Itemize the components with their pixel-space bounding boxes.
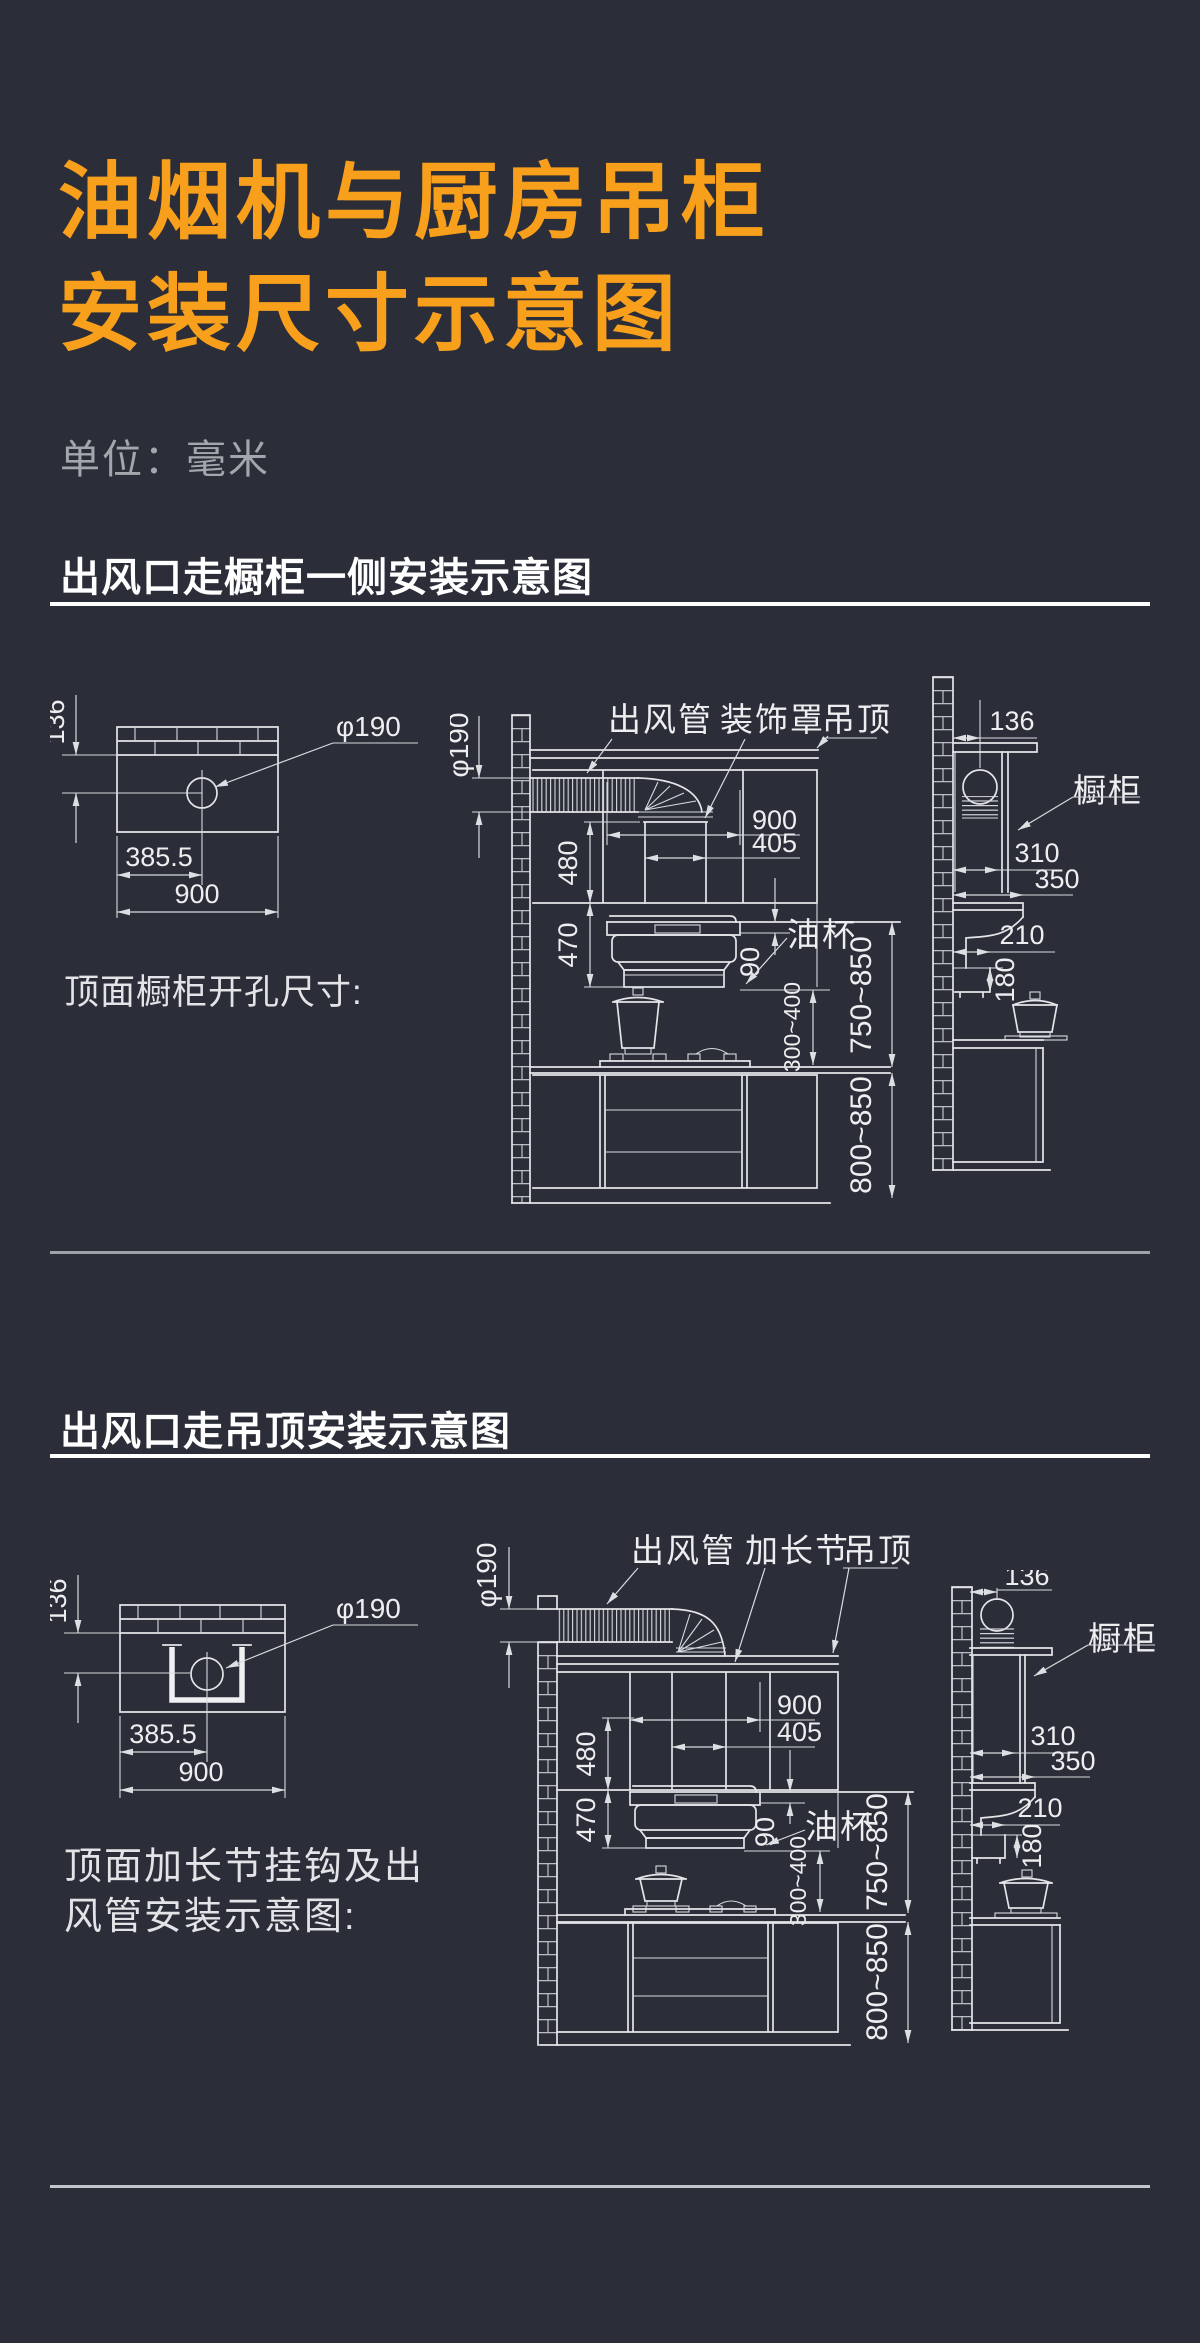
dim-136: 136 <box>953 700 1037 768</box>
dim-405-label: 405 <box>777 1717 822 1747</box>
extension-label: 加长节 <box>745 1532 850 1569</box>
dim-750-850-label: 750~850 <box>845 936 878 1054</box>
dim-300-400: 300~400 <box>779 982 813 1072</box>
hole-diameter-label: φ190 <box>336 1593 401 1624</box>
section1-sideview-drawing: 136 橱柜 310 <box>925 670 1155 1215</box>
dim-210-label: 210 <box>1017 1793 1062 1823</box>
dim-800-850: 800~850 <box>845 1073 892 1198</box>
section2-heading-rule <box>50 1454 1150 1458</box>
section-divider <box>50 1251 1150 1254</box>
exhaust-duct <box>540 1609 725 1656</box>
dim-136-label: 136 <box>1004 1570 1049 1591</box>
section2-caption-line1: 顶面加长节挂钩及出 <box>64 1842 424 1892</box>
cabinet-callout: 橱柜 <box>1018 772 1143 830</box>
dim-180-label: 180 <box>990 957 1020 1002</box>
dim-385-label: 385.5 <box>129 1719 197 1749</box>
exhaust-duct <box>530 778 702 812</box>
dim-900-label: 900 <box>178 1757 223 1787</box>
dim-phi190-label: φ190 <box>471 1543 502 1608</box>
dim-90-label: 90 <box>735 947 765 977</box>
stove-and-pot <box>600 988 750 1067</box>
section2-caption-line2: 风管安装示意图: <box>64 1892 424 1942</box>
dim-136: 136 <box>970 1570 1052 1600</box>
dim-480: 480 <box>571 1718 634 1790</box>
dim-136: 136 <box>50 695 76 843</box>
ceiling <box>530 750 818 758</box>
dim-900-label: 900 <box>174 879 219 909</box>
dim-405: 405 <box>672 1717 822 1747</box>
wall <box>952 1587 972 2030</box>
dim-385: 385.5 <box>120 1719 207 1752</box>
dim-180: 180 <box>990 957 1020 1002</box>
dim-136-label: 136 <box>50 699 70 744</box>
stove-and-pot <box>625 1866 775 1915</box>
dim-480-label: 480 <box>553 840 583 885</box>
dim-210-label: 210 <box>999 920 1044 950</box>
dim-800-850-label: 800~850 <box>845 1076 878 1194</box>
dim-300-400-label: 300~400 <box>779 982 805 1072</box>
hole-diameter-callout: φ190 <box>215 711 418 787</box>
section2-elevation-drawing: φ190 出风管 加长节 吊顶 900 405 480 <box>450 1530 920 2060</box>
dim-405-label: 405 <box>752 828 797 858</box>
dim-750-850: 750~850 <box>861 1792 908 1913</box>
dim-350-label: 350 <box>1034 864 1079 894</box>
base-cabinet <box>540 1923 850 2045</box>
dim-900: 900 <box>117 879 278 912</box>
dim-385: 385.5 <box>117 842 202 875</box>
shelf <box>953 743 1037 752</box>
dim-300-400-label: 300~400 <box>785 1836 811 1926</box>
base-cabinet <box>512 1075 830 1203</box>
section1-caption: 顶面橱柜开孔尺寸: <box>64 968 363 1018</box>
section1-heading-rule <box>50 602 1150 606</box>
section1-topview-drawing: 136 385.5 900 φ190 <box>50 670 430 960</box>
page-title-line1: 油烟机与厨房吊柜 <box>58 160 770 244</box>
dim-750-850-label: 750~850 <box>861 1793 894 1911</box>
wall <box>538 1596 557 2045</box>
dim-800-850-label: 800~850 <box>861 1923 894 2041</box>
dim-210: 210 <box>953 920 1055 952</box>
dim-750-850: 750~850 <box>845 922 892 1067</box>
ceiling-label: 吊顶 <box>822 701 892 738</box>
dim-405: 405 <box>645 828 800 858</box>
section1-heading: 出风口走橱柜一侧安装示意图 <box>60 545 593 603</box>
section2-topview-drawing: 136 385.5 900 φ190 <box>50 1560 430 1850</box>
hole-diameter-label: φ190 <box>336 711 401 742</box>
dim-phi190: φ190 <box>471 1543 540 1688</box>
dim-90-label: 90 <box>750 1817 780 1847</box>
dim-350: 350 <box>953 864 1080 895</box>
shelf <box>970 1648 1052 1655</box>
dim-phi190-label: φ190 <box>450 713 474 778</box>
countertop <box>530 1067 890 1073</box>
dim-136: 136 <box>50 1575 78 1723</box>
duct-label: 出风管 <box>608 701 713 738</box>
page-title-line2: 安装尺寸示意图 <box>58 272 681 356</box>
dim-350-label: 350 <box>1050 1746 1095 1776</box>
dim-800-850: 800~850 <box>861 1922 908 2043</box>
duct-section <box>962 770 998 818</box>
dim-136-label: 136 <box>50 1578 72 1623</box>
countertop <box>557 1915 905 1922</box>
cabinet-label: 橱柜 <box>1088 1620 1158 1657</box>
wall <box>933 677 953 1170</box>
dim-900: 900 <box>120 1757 285 1790</box>
pot-and-counter <box>970 1870 1060 1925</box>
ceiling <box>557 1648 838 1664</box>
dim-210: 210 <box>970 1793 1063 1825</box>
oil-cup-callout: 油杯 <box>766 1808 875 1845</box>
bottom-divider <box>50 2185 1150 2188</box>
dim-90: 90 <box>735 878 775 977</box>
unit-label: 单位：毫米 <box>60 427 270 485</box>
installation-diagram-page: 油烟机与厨房吊柜 安装尺寸示意图 单位：毫米 出风口走橱柜一侧安装示意图 136… <box>0 0 1200 2343</box>
dim-300-400: 300~400 <box>785 1836 820 1926</box>
section2-caption: 顶面加长节挂钩及出 风管安装示意图: <box>64 1842 424 1942</box>
dim-180-label: 180 <box>1017 1823 1047 1868</box>
dim-480-label: 480 <box>571 1731 601 1776</box>
section2-heading: 出风口走吊顶安装示意图 <box>60 1399 511 1457</box>
cabinet-label: 橱柜 <box>1073 772 1143 809</box>
section2-sideview-drawing: 136 橱柜 310 350 <box>945 1570 1175 2070</box>
cover-label: 装饰罩 <box>720 701 825 738</box>
dim-470-label: 470 <box>571 1797 601 1842</box>
duct-label: 出风管 <box>631 1532 736 1569</box>
dim-470-label: 470 <box>553 922 583 967</box>
duct-section <box>980 1599 1014 1648</box>
dim-136-label: 136 <box>989 706 1034 736</box>
wall <box>512 715 530 1203</box>
dim-900-label: 900 <box>777 1690 822 1720</box>
dim-480: 480 <box>553 822 640 903</box>
section1-elevation-drawing: φ190 出风管 装饰罩 吊顶 900 405 480 <box>450 662 920 1217</box>
dim-385-label: 385.5 <box>125 842 193 872</box>
dim-180: 180 <box>1017 1823 1047 1868</box>
ceiling-label: 吊顶 <box>843 1532 913 1569</box>
